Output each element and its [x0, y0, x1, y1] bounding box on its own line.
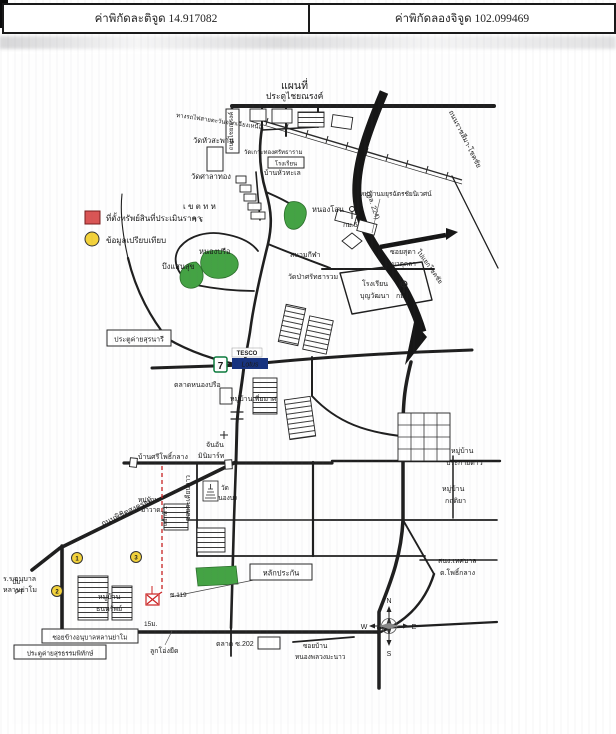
km5-label: กม.5 [343, 222, 358, 229]
moo-prakaidao-label-1: หมู่บ้าน [451, 447, 474, 455]
comparable-point-2: 2 [52, 586, 63, 597]
gate-suratham-label: ประตูค่ายสุรธรรมพิทักษ์ [27, 650, 94, 658]
latitude-cell: ค่าพิกัดละติจูด 14.917082 [4, 5, 310, 32]
latitude-value: ค่าพิกัดละติจูด 14.917082 [95, 10, 218, 28]
svg-text:TESCO: TESCO [237, 351, 258, 357]
gate-symbol [225, 460, 233, 469]
wat-salathong-label: วัดศาลาทอง [191, 172, 231, 181]
stadium-label: สนามกีฬา [290, 251, 321, 259]
compass-s: S [387, 651, 392, 658]
wat-pa-label: วัดป่าศรัทธารวม [288, 273, 338, 281]
gate-suranari-label: ประตูค่ายสุรนารี [114, 336, 164, 344]
moo-thanasap-label-2: ธนทรัพย์ [96, 605, 122, 613]
moo-mayura-label: หมู่บ้านมยุรฉัตรชัยนิเวศน์ [360, 190, 432, 198]
market-nongprue-label: ตลาดหนองปรือ [174, 381, 221, 389]
compass-n: N [386, 598, 391, 605]
moo-piamat-label: หมู่บ้านเพี่ยมาศ [230, 394, 277, 403]
longitude-cell: ค่าพิกัดลองจิจูด 102.099469 [310, 5, 614, 32]
anuban-label-1: ร.ร.อนุบาล [3, 576, 36, 583]
legend-property-label: ที่ตั้งทรัพย์สินที่ประเมินราคา [106, 212, 201, 223]
moo-krittiya-label-2: กฤติยา [445, 497, 466, 505]
moo-prakaidao-label-2: ประกายดาว [446, 460, 483, 467]
km6-label: กม.6 [396, 293, 411, 300]
longitude-value: ค่าพิกัดลองจิจูด 102.099469 [395, 10, 529, 28]
gate-symbol [129, 458, 137, 468]
map-canvas: แผนที่ [0, 0, 616, 734]
military-zone-label-1: เ ข ต ท ห [183, 202, 216, 211]
coordinates-table: ค่าพิกัดละติจูด 14.917082 ค่าพิกัดลองจิจ… [2, 3, 616, 34]
soi-khang-label: ซอยข้างอนุบาลหลานย่าโม [52, 634, 127, 642]
ban-huathale-label: บ้านหัวทะเล [264, 169, 301, 177]
moo-thanasap-label-1: หมู่บ้าน [98, 593, 121, 601]
gate-chainarong-label: ประตูไชยณรงค์ [266, 91, 323, 102]
distance-label: 15ม. [144, 621, 158, 628]
moo-krittiya-label-1: หมู่บ้าน [442, 485, 465, 493]
lukong-label: ลูกโอ่งยืด [150, 646, 179, 655]
chanan-label-2: มินิมาร์ท [198, 452, 225, 460]
school-boon-label-2: บุญวัฒนา [360, 292, 389, 300]
soi-takian-label: ซอยตะเคียนยาว [184, 475, 192, 521]
legend-comparable-icon [85, 232, 99, 246]
nong-sano-label: หนองโสน [312, 205, 344, 214]
nong-prue-label: หนองปรือ [199, 247, 231, 256]
temple-icon [203, 481, 218, 501]
soi-nongpluang-label-2: หนองพลวงมะนาว [295, 654, 346, 661]
seven-eleven-icon: 7 [214, 357, 227, 372]
comparable-point-1: 1 [72, 553, 83, 564]
comparable-point-3: 3 [131, 552, 142, 563]
svg-text:Lotus: Lotus [241, 362, 259, 369]
school-box-label: โรงเรียน [275, 160, 297, 168]
compass-w: W [361, 624, 368, 631]
legend-property-icon [85, 211, 100, 224]
chanan-label-1: จันอัน [206, 441, 224, 449]
big-grid-block [398, 413, 450, 461]
soi119-label: ซ.119 [170, 592, 187, 599]
collateral-label: หลักประกัน [263, 569, 300, 578]
military-zone-label-2: า ร [192, 215, 204, 224]
road-matukla-label: ถ.มาตุคลา [386, 261, 416, 268]
soi-suda-label: ซอยสุดา [390, 249, 416, 256]
green-strip [196, 566, 238, 586]
soi-nongpluang-label-1: ซอยบ้าน [303, 642, 328, 650]
yaek1-label: แยกที่ 1 [161, 505, 169, 526]
bueng-saensuk-label: บึงแสนสุข [162, 262, 195, 271]
market202-label: ตลาด ซ.202 [216, 641, 254, 648]
wat-huasaphan-label: วัดหัวสะพาน [193, 136, 234, 145]
compass-e: E [412, 624, 417, 631]
legend-comparable-label: ข้อมูลเปรียบเทียบ [106, 236, 166, 246]
school-boon-label-1: โรงเรียน [362, 279, 388, 288]
tessaban-label-1: สนง.เทศบาล [438, 558, 477, 565]
wat-koh-label: วัดเกาะทองศรัทธาราม [244, 149, 303, 156]
anuban-label-2: หลานย่าโม [3, 585, 37, 594]
wat-nongbong-label-1: วัด [221, 484, 229, 492]
map-title: แผนที่ [281, 78, 308, 92]
svg-text:7: 7 [218, 361, 224, 372]
